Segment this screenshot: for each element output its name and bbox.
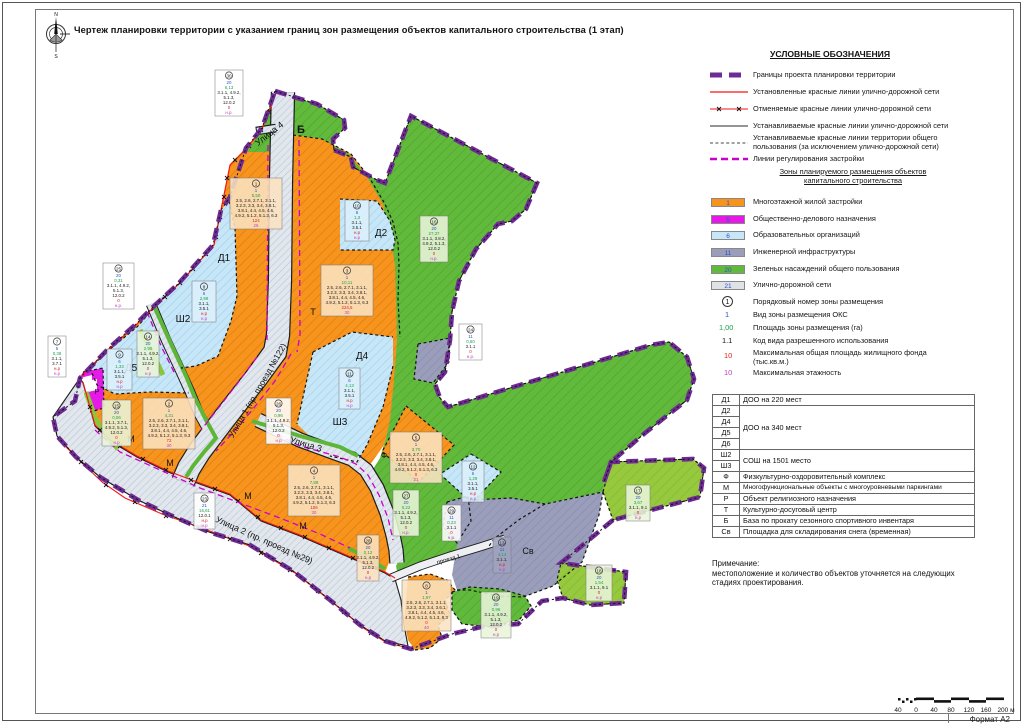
svg-text:30: 30 xyxy=(345,310,350,315)
svg-text:S: S xyxy=(54,54,58,60)
svg-text:26: 26 xyxy=(254,223,259,228)
svg-text:Ф: Ф xyxy=(381,451,387,460)
svg-text:н.р: н.р xyxy=(145,371,152,376)
svg-text:н.р.: н.р. xyxy=(467,354,474,359)
svg-text:н.р: н.р xyxy=(493,632,500,637)
svg-text:21: 21 xyxy=(414,477,419,482)
svg-text:40: 40 xyxy=(424,625,429,630)
svg-text:Д2: Д2 xyxy=(375,228,388,239)
svg-text:н.р.: н.р. xyxy=(448,535,455,540)
svg-text:н.р: н.р xyxy=(201,316,208,321)
svg-text:н.р.: н.р. xyxy=(430,256,437,261)
svg-text:М: М xyxy=(244,491,252,501)
svg-text:н.р: н.р xyxy=(275,438,282,443)
svg-text:М: М xyxy=(299,521,307,531)
svg-text:н.р: н.р xyxy=(354,235,361,240)
svg-text:23: 23 xyxy=(202,496,208,501)
svg-text:30: 30 xyxy=(226,73,232,78)
svg-text:н.р.: н.р. xyxy=(115,303,122,308)
svg-text:н.р: н.р xyxy=(54,371,61,376)
svg-text:1: 1 xyxy=(255,181,258,186)
svg-text:Т: Т xyxy=(310,307,316,317)
svg-text:12: 12 xyxy=(470,464,476,469)
svg-text:17: 17 xyxy=(635,488,641,493)
svg-text:7: 7 xyxy=(56,339,59,344)
svg-text:27: 27 xyxy=(403,493,409,498)
svg-text:н.р.: н.р. xyxy=(402,530,409,535)
svg-text:н.р: н.р xyxy=(201,523,208,528)
svg-text:29: 29 xyxy=(449,508,455,513)
svg-text:Св: Св xyxy=(522,546,533,556)
svg-text:н.р: н.р xyxy=(116,384,123,389)
svg-text:Ш3: Ш3 xyxy=(333,417,348,428)
svg-text:3: 3 xyxy=(346,268,349,273)
svg-text:26: 26 xyxy=(276,401,282,406)
svg-text:14: 14 xyxy=(145,334,151,339)
svg-text:10: 10 xyxy=(354,203,360,208)
svg-text:М: М xyxy=(166,458,174,468)
svg-text:15: 15 xyxy=(114,403,120,408)
svg-text:18: 18 xyxy=(596,568,602,573)
svg-text:2: 2 xyxy=(168,401,171,406)
svg-text:28: 28 xyxy=(365,538,371,543)
svg-text:Р: Р xyxy=(95,389,100,396)
svg-text:н.р: н.р xyxy=(346,403,353,408)
svg-text:Ш2: Ш2 xyxy=(176,314,191,325)
svg-text:16: 16 xyxy=(431,219,437,224)
svg-text:н.р: н.р xyxy=(635,515,642,520)
svg-text:4: 4 xyxy=(313,468,316,473)
svg-text:н.р.: н.р. xyxy=(225,110,232,115)
svg-text:30: 30 xyxy=(167,443,172,448)
svg-text:Д4: Д4 xyxy=(356,351,369,362)
svg-text:30: 30 xyxy=(312,510,317,515)
svg-text:н.р: н.р xyxy=(365,575,372,580)
svg-text:н.р: н.р xyxy=(499,567,506,572)
svg-text:19: 19 xyxy=(493,595,499,600)
svg-text:8: 8 xyxy=(203,284,206,289)
svg-text:Б: Б xyxy=(297,124,305,136)
svg-text:9: 9 xyxy=(118,352,121,357)
svg-text:н.р: н.р xyxy=(470,496,477,501)
svg-text:Д1: Д1 xyxy=(218,253,231,264)
svg-text:н.р: н.р xyxy=(113,440,120,445)
svg-text:8: 8 xyxy=(425,583,428,588)
svg-text:н.р: н.р xyxy=(596,595,603,600)
svg-text:25: 25 xyxy=(116,266,122,271)
svg-text:N: N xyxy=(54,12,58,18)
svg-text:13: 13 xyxy=(499,540,505,545)
svg-text:5: 5 xyxy=(415,435,418,440)
svg-text:24: 24 xyxy=(468,327,474,332)
svg-text:11: 11 xyxy=(347,371,352,376)
